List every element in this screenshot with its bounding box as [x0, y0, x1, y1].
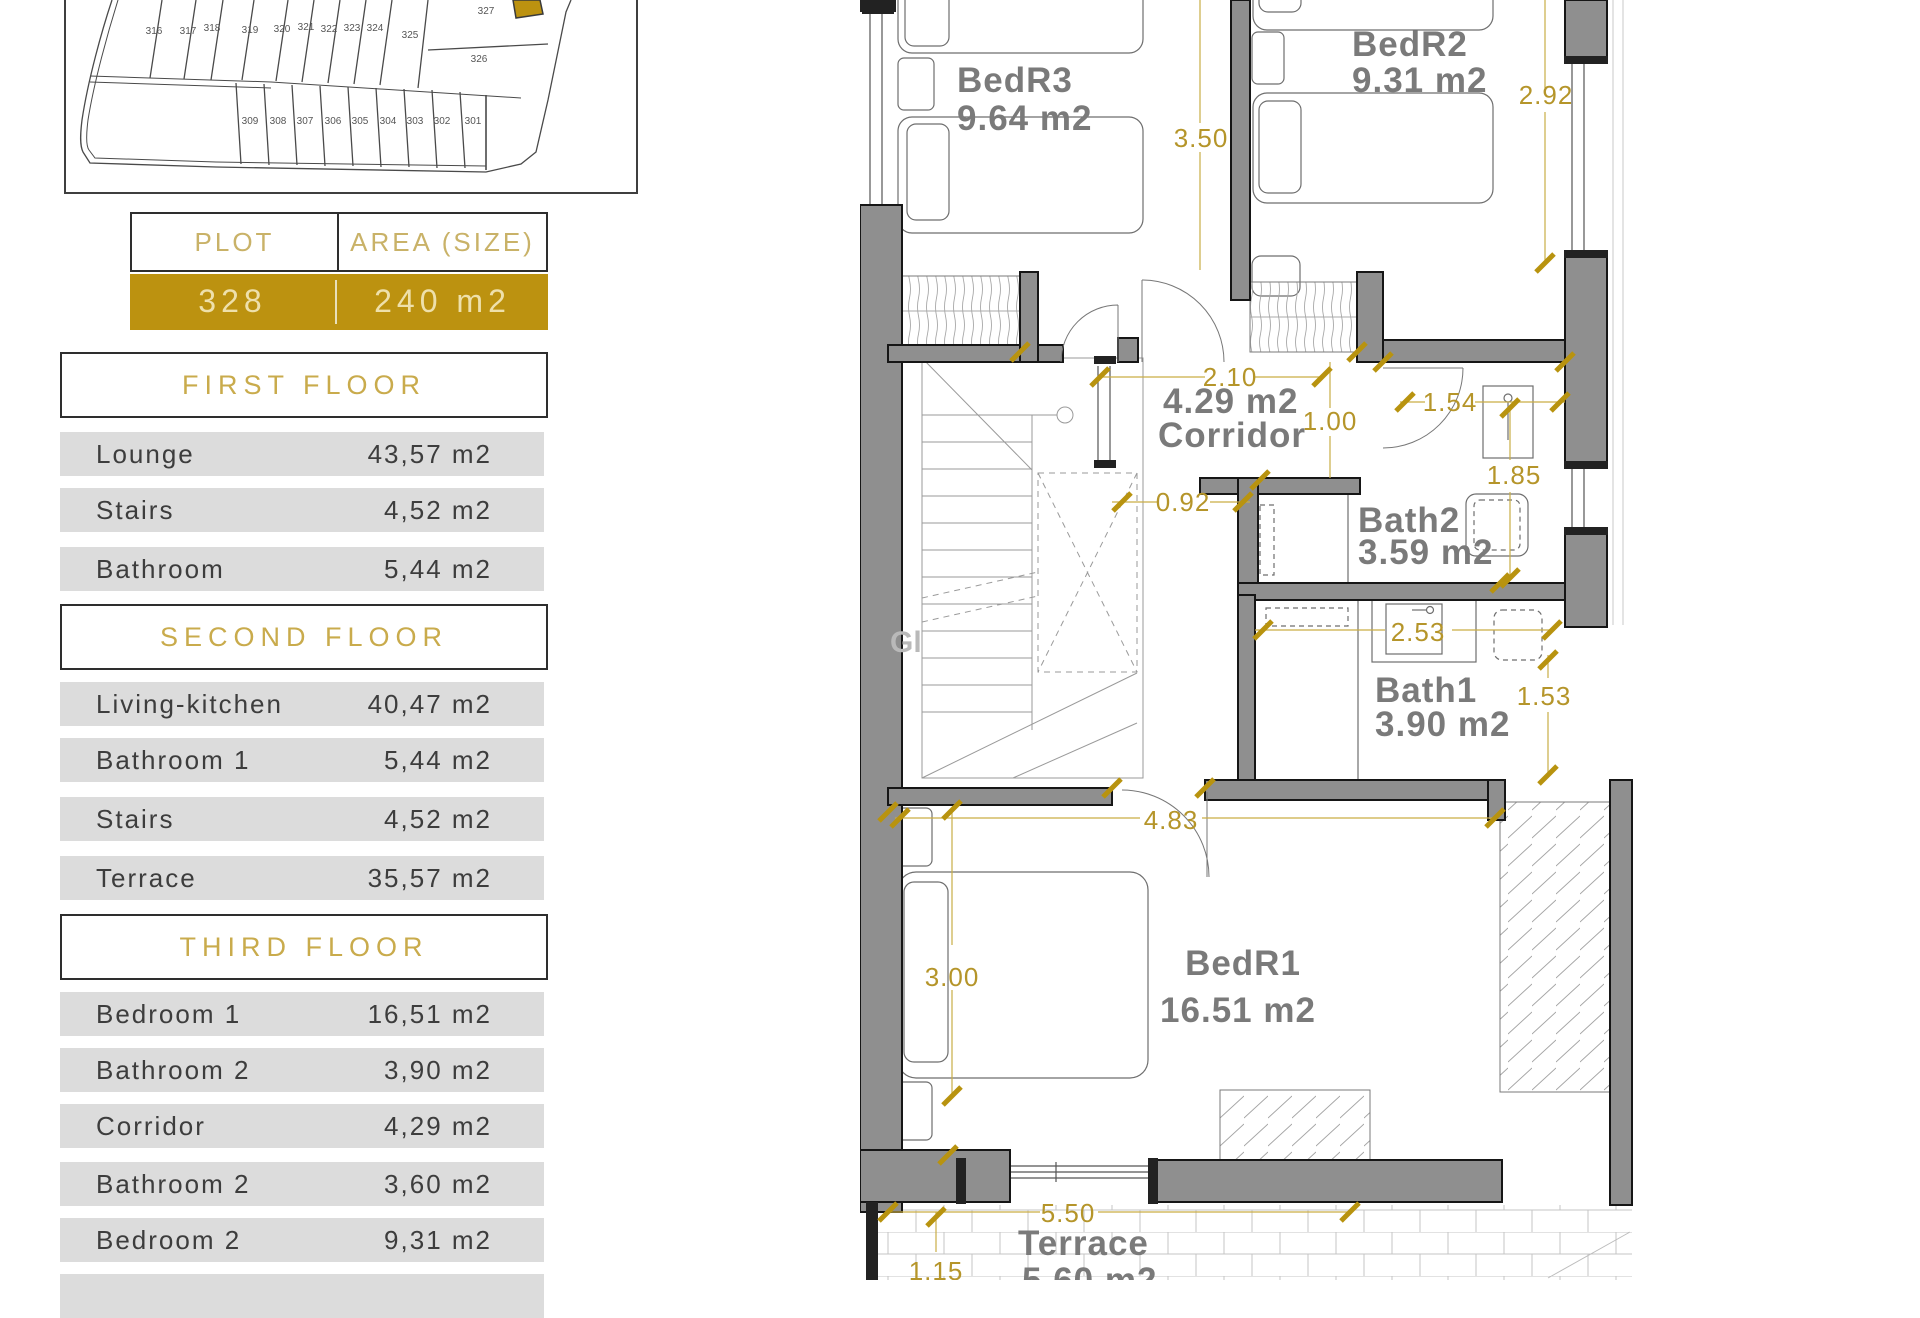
tap — [1427, 607, 1434, 614]
shower — [1256, 493, 1348, 585]
section-title-second-floor: SECOND FLOOR — [60, 604, 548, 670]
table-row: Living-kitchen 40,47 m2 — [60, 682, 544, 726]
dim-bedr1-width: 4.83 — [1144, 805, 1199, 835]
plot-number: 305 — [352, 116, 369, 127]
plot-table-value-row: 328 240 m2 — [130, 274, 548, 330]
room-area: 3,90 m2 — [384, 1055, 492, 1086]
terrace-tiles — [876, 1205, 1632, 1280]
plot-number: 303 — [407, 116, 424, 127]
plot-number: 306 — [325, 116, 342, 127]
watermark: Gl — [890, 626, 922, 659]
room-name-bedr1: BedR1 — [1185, 944, 1301, 983]
room-area: 5,44 m2 — [384, 745, 492, 776]
plot-number: 307 — [297, 116, 314, 127]
room-area: 4,52 m2 — [384, 495, 492, 526]
table-row: Bedroom 2 9,31 m2 — [60, 1218, 544, 1262]
room-label: Bathroom 2 — [96, 1169, 250, 1200]
room-label: Stairs — [96, 495, 174, 526]
bed — [1253, 93, 1493, 203]
room-label: Bathroom 1 — [96, 745, 250, 776]
area-header-label: AREA (SIZE) — [350, 227, 535, 258]
plot-value-cell: 328 — [130, 280, 337, 325]
room-name-bedr3: BedR3 — [957, 61, 1073, 100]
dim-hall-width: 1.00 — [1303, 406, 1358, 436]
room-area: 5,44 m2 — [384, 554, 492, 585]
plot-number: 325 — [402, 30, 419, 41]
room-area-bedr3: 9.64 m2 — [957, 99, 1092, 138]
plot-location-map: 316 317 318 319 320 321 322 323 324 325 … — [64, 0, 638, 194]
dim-bath1-height: 1.53 — [1517, 681, 1572, 711]
nightstand — [898, 58, 934, 110]
table-row: Stairs 4,52 m2 — [60, 488, 544, 532]
wardrobe — [1220, 1090, 1370, 1160]
table-row-partial — [60, 1274, 544, 1318]
pillow — [1259, 101, 1301, 193]
nightstand — [1252, 32, 1284, 84]
plot-numbers: 316 317 318 319 320 321 322 323 324 325 … — [146, 6, 495, 127]
table-row: Corridor 4,29 m2 — [60, 1104, 544, 1148]
room-label: Bathroom 2 — [96, 1055, 250, 1086]
dim-bath2-height: 1.85 — [1487, 460, 1542, 490]
plot-number: 308 — [270, 116, 287, 127]
shower-drain — [1260, 505, 1274, 575]
table-row: Bedroom 1 16,51 m2 — [60, 992, 544, 1036]
table-row: Stairs 4,52 m2 — [60, 797, 544, 841]
plot-number: 321 — [298, 22, 315, 33]
room-label: Terrace — [96, 863, 197, 894]
room-label: Living-kitchen — [96, 689, 283, 720]
table-row: Bathroom 2 3,90 m2 — [60, 1048, 544, 1092]
section-title-first-floor: FIRST FLOOR — [60, 352, 548, 418]
room-area: 40,47 m2 — [368, 689, 492, 720]
plot-number: 327 — [478, 6, 495, 17]
room-label: Corridor — [96, 1111, 206, 1142]
room-name-bedr2: BedR2 — [1352, 25, 1468, 64]
table-row: Bathroom 2 3,60 m2 — [60, 1162, 544, 1206]
plot-number: 301 — [465, 116, 482, 127]
section-title-label: SECOND FLOOR — [160, 622, 448, 653]
section-title-label: THIRD FLOOR — [179, 932, 428, 963]
room-area-bath2: 3.59 m2 — [1358, 533, 1493, 572]
dimension-lines — [885, 0, 1565, 1252]
plot-number: 304 — [380, 116, 397, 127]
plot-number: 318 — [204, 23, 221, 34]
room-area: 9,31 m2 — [384, 1225, 492, 1256]
plot-area-table: PLOT AREA (SIZE) 328 240 m2 — [130, 212, 548, 330]
plot-number: 324 — [367, 23, 384, 34]
pillow — [907, 124, 949, 220]
dim-bedr1-height: 3.00 — [925, 962, 980, 992]
dim-bath1-width: 2.53 — [1391, 617, 1446, 647]
plot-number: 316 — [146, 26, 163, 37]
room-label: Lounge — [96, 439, 195, 470]
floorplan-page: { "colors": { "accent_gold": "#bc9210", … — [0, 0, 1920, 1280]
plot-number: 319 — [242, 25, 259, 36]
plot-number: 317 — [180, 26, 197, 37]
plot-number: 323 — [344, 23, 361, 34]
plot-number: 309 — [242, 116, 259, 127]
room-label: Bedroom 1 — [96, 999, 241, 1030]
room-label: Stairs — [96, 804, 174, 835]
wardrobe — [1500, 802, 1612, 1092]
bed — [898, 0, 1143, 53]
highlighted-plot-328 — [513, 0, 543, 18]
plot-map-drawing: 316 317 318 319 320 321 322 323 324 325 … — [66, 0, 632, 190]
plot-number: 322 — [321, 24, 338, 35]
table-row: Lounge 43,57 m2 — [60, 432, 544, 476]
room-name-corridor: Corridor — [1158, 416, 1306, 455]
dim-terrace-side: 1.15 — [909, 1256, 964, 1280]
area-header-cell: AREA (SIZE) — [339, 214, 546, 270]
dim-bedr2-height: 2.92 — [1519, 80, 1574, 110]
plot-number-value: 328 — [198, 283, 266, 320]
plot-header-label: PLOT — [195, 227, 275, 258]
room-area: 3,60 m2 — [384, 1169, 492, 1200]
room-label: Bedroom 2 — [96, 1225, 241, 1256]
table-row: Bathroom 1 5,44 m2 — [60, 738, 544, 782]
third-floor-plan: Gl 3.50 2.92 2.10 1.00 1.54 1.85 0.92 2.… — [860, 0, 1670, 1280]
room-area: 16,51 m2 — [368, 999, 492, 1030]
section-title-label: FIRST FLOOR — [182, 370, 426, 401]
room-name-terrace: Terrace — [1018, 1224, 1149, 1263]
door-bedr3 — [1061, 305, 1118, 362]
section-title-third-floor: THIRD FLOOR — [60, 914, 548, 980]
dim-passage-width: 0.92 — [1156, 487, 1211, 517]
plot-number: 302 — [434, 116, 451, 127]
pillow — [1259, 0, 1301, 12]
room-area: 35,57 m2 — [368, 863, 492, 894]
room-area-bedr2: 9.31 m2 — [1352, 61, 1487, 100]
room-area: 4,29 m2 — [384, 1111, 492, 1142]
room-area: 4,52 m2 — [384, 804, 492, 835]
room-area: 43,57 m2 — [368, 439, 492, 470]
area-value-cell: 240 m2 — [337, 280, 548, 325]
plot-number: 320 — [274, 24, 291, 35]
plot-header-cell: PLOT — [132, 214, 339, 270]
room-area-terrace: 5.60 m2 — [1022, 1261, 1157, 1280]
door-bedr2 — [1142, 280, 1224, 362]
plot-number: 326 — [471, 54, 488, 65]
dim-bedr3-height: 3.50 — [1174, 123, 1229, 153]
tap — [1504, 394, 1512, 402]
exterior-line — [1613, 0, 1623, 625]
table-row: Bathroom 5,44 m2 — [60, 547, 544, 591]
plot-table-header: PLOT AREA (SIZE) — [130, 212, 548, 272]
room-label: Bathroom — [96, 554, 225, 585]
dim-nook-width: 1.54 — [1423, 387, 1478, 417]
pillow — [905, 0, 949, 46]
room-area-bedr1: 16.51 m2 — [1160, 991, 1316, 1030]
table-row: Terrace 35,57 m2 — [60, 856, 544, 900]
toilet — [1494, 610, 1542, 660]
plot-area-value: 240 m2 — [374, 283, 511, 320]
room-area-bath1: 3.90 m2 — [1375, 705, 1510, 744]
